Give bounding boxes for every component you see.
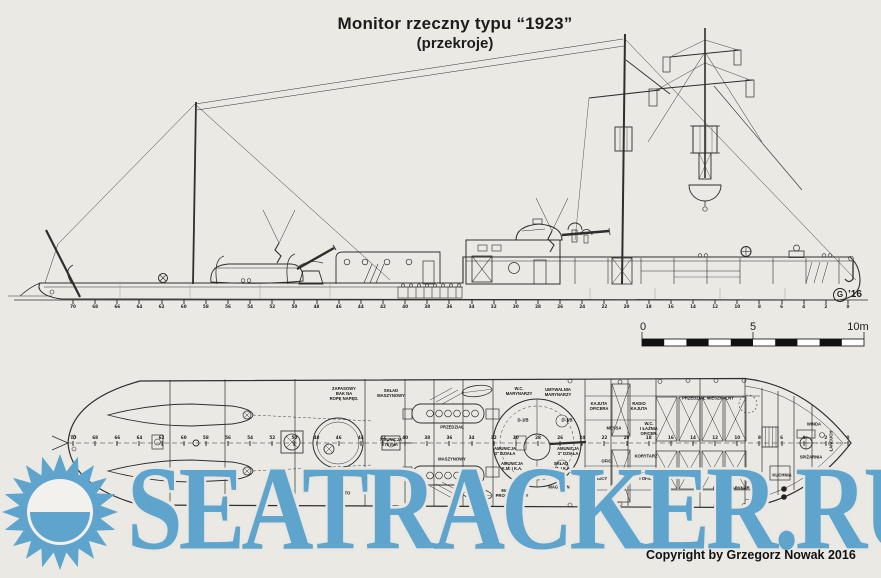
compartment-label: MESSA bbox=[607, 427, 622, 432]
compartment-label: PRZEDZIAŁ bbox=[440, 426, 464, 431]
copyright-notice: Copyright by Grzegorz Nowak 2016 bbox=[646, 548, 856, 563]
compartment-label: KAJUTA OFICERA bbox=[590, 402, 609, 412]
compartment-label: W.C. I ŁAŹNIA OFICER. bbox=[640, 422, 658, 436]
compartment-label: D-1/B bbox=[518, 419, 529, 424]
compartment-label: SKŁAD MASZYNOWY bbox=[377, 389, 405, 399]
artist-year: ’16 bbox=[848, 289, 862, 300]
compartment-label: ZAPASOWY BAK NA ROPĘ NAPĘD. bbox=[330, 387, 359, 401]
compartment-label: WINDA bbox=[807, 423, 821, 428]
compartment-label: RADIO KAJUTA bbox=[631, 402, 648, 412]
ship-blueprint-page: Monitor rzeczny typu “1923” (przekroje) … bbox=[0, 0, 881, 578]
artist-mark: G’16 bbox=[833, 288, 862, 302]
compartment-label: W.C. MARYNARZY bbox=[506, 387, 533, 397]
compartment-label: D-1/B bbox=[562, 419, 573, 424]
compartment-label: UMYWALNIA MARYNARZY bbox=[545, 388, 572, 398]
compartment-label: PRZEDZIAŁ MIESZKALNY bbox=[682, 397, 734, 402]
artist-initial: G bbox=[833, 288, 847, 302]
